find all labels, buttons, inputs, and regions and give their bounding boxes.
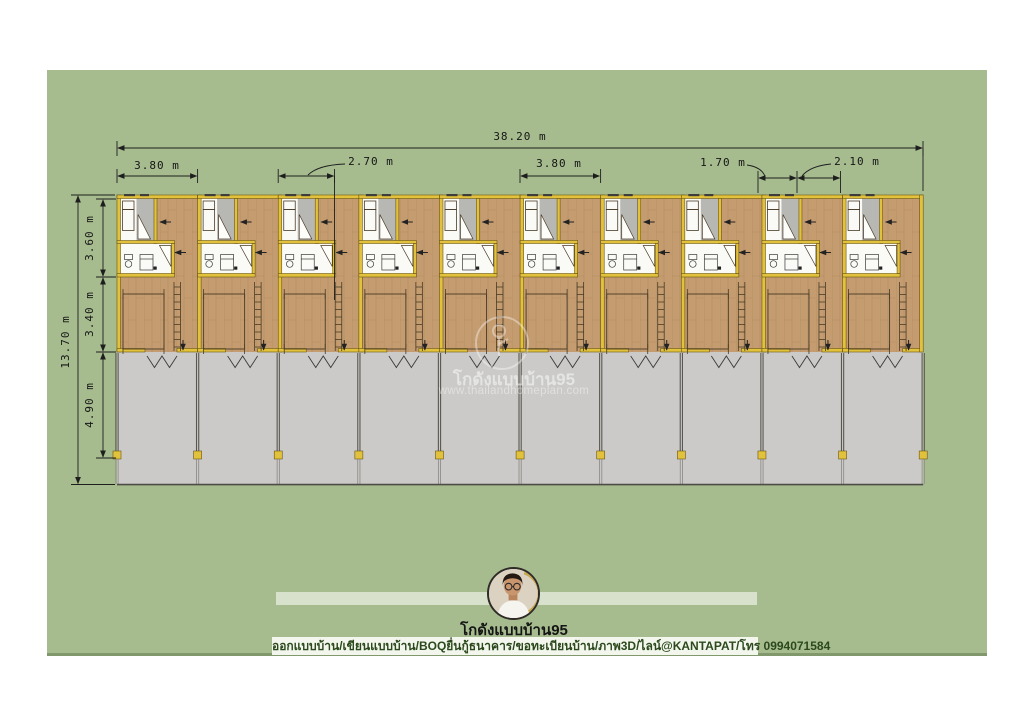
- watermark-logo-circle: [475, 316, 529, 370]
- dim-unit-width-left: 3.80 m: [134, 159, 180, 172]
- dim-zone-depth-bottom: 4.90 m: [83, 382, 96, 428]
- dim-zone-depth-top: 3.60 m: [83, 215, 96, 261]
- dim-overall-depth: 13.70 m: [59, 315, 72, 368]
- avatar-photo: [489, 569, 538, 618]
- dim-interior-width: 2.70 m: [348, 155, 394, 168]
- dim-bay-width-right: 2.10 m: [834, 155, 880, 168]
- dim-unit-width-mid: 3.80 m: [536, 157, 582, 170]
- avatar: [487, 567, 540, 620]
- concrete-zone: [117, 352, 923, 485]
- watermark-person-icon: [477, 318, 522, 363]
- dim-bay-width-left: 1.70 m: [700, 156, 746, 169]
- dim-zone-depth-middle: 3.40 m: [83, 291, 96, 337]
- dim-overall-width: 38.20 m: [493, 130, 546, 143]
- caption-bar: ออกแบบบ้าน/เขียนแบบบ้าน/BOQยื่นกู้ธนาคาร…: [272, 637, 758, 655]
- page: 38.20 m 3.80 m 2.70 m 3.80 m 1.70 m: [0, 0, 1024, 724]
